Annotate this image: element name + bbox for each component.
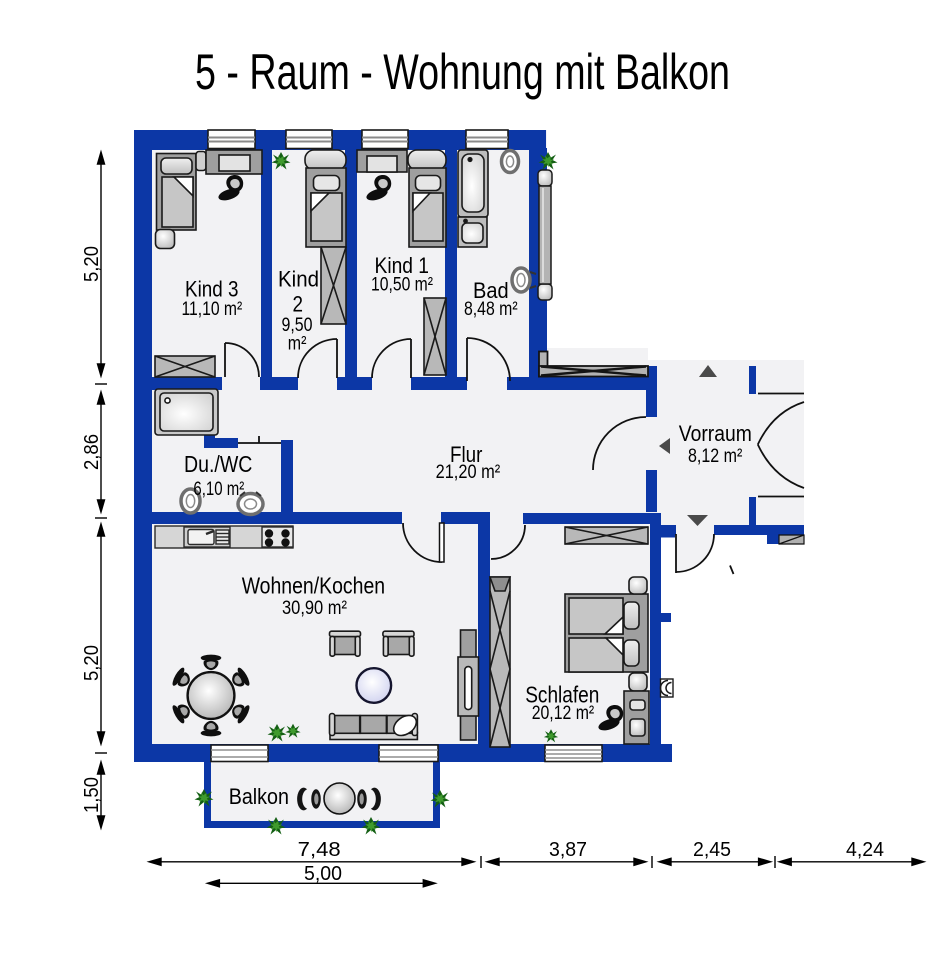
svg-text:2,86: 2,86 xyxy=(81,434,103,470)
svg-text:6,10 m²: 6,10 m² xyxy=(193,479,244,500)
svg-text:Du./WC: Du./WC xyxy=(184,451,252,477)
svg-text:5,20: 5,20 xyxy=(81,645,103,681)
svg-text:2,45: 2,45 xyxy=(693,839,731,861)
svg-text:Wohnen/Kochen: Wohnen/Kochen xyxy=(242,573,385,599)
svg-text:4,24: 4,24 xyxy=(846,839,884,861)
svg-text:10,50 m²: 10,50 m² xyxy=(371,274,433,295)
svg-text:8,48 m²: 8,48 m² xyxy=(464,299,518,320)
svg-text:Kind: Kind xyxy=(278,267,319,292)
svg-text:20,12 m²: 20,12 m² xyxy=(532,703,595,724)
svg-text:Vorraum: Vorraum xyxy=(679,421,752,446)
svg-text:21,20 m²: 21,20 m² xyxy=(436,462,501,483)
svg-text:30,90 m²: 30,90 m² xyxy=(282,598,347,619)
svg-text:5,00: 5,00 xyxy=(304,863,342,885)
svg-text:1,50: 1,50 xyxy=(81,777,103,813)
svg-text:3,87: 3,87 xyxy=(549,839,587,861)
svg-text:5 - Raum - Wohnung mit Balkon: 5 - Raum - Wohnung mit Balkon xyxy=(195,44,730,100)
svg-text:5,20: 5,20 xyxy=(81,246,103,282)
svg-text:Balkon: Balkon xyxy=(229,784,289,809)
svg-text:7,48: 7,48 xyxy=(298,839,341,861)
svg-text:2: 2 xyxy=(293,291,304,316)
svg-text:8,12 m²: 8,12 m² xyxy=(688,446,742,467)
svg-text:m²: m² xyxy=(288,334,307,355)
svg-text:Kind 3: Kind 3 xyxy=(185,277,239,302)
svg-text:11,10 m²: 11,10 m² xyxy=(182,299,243,320)
